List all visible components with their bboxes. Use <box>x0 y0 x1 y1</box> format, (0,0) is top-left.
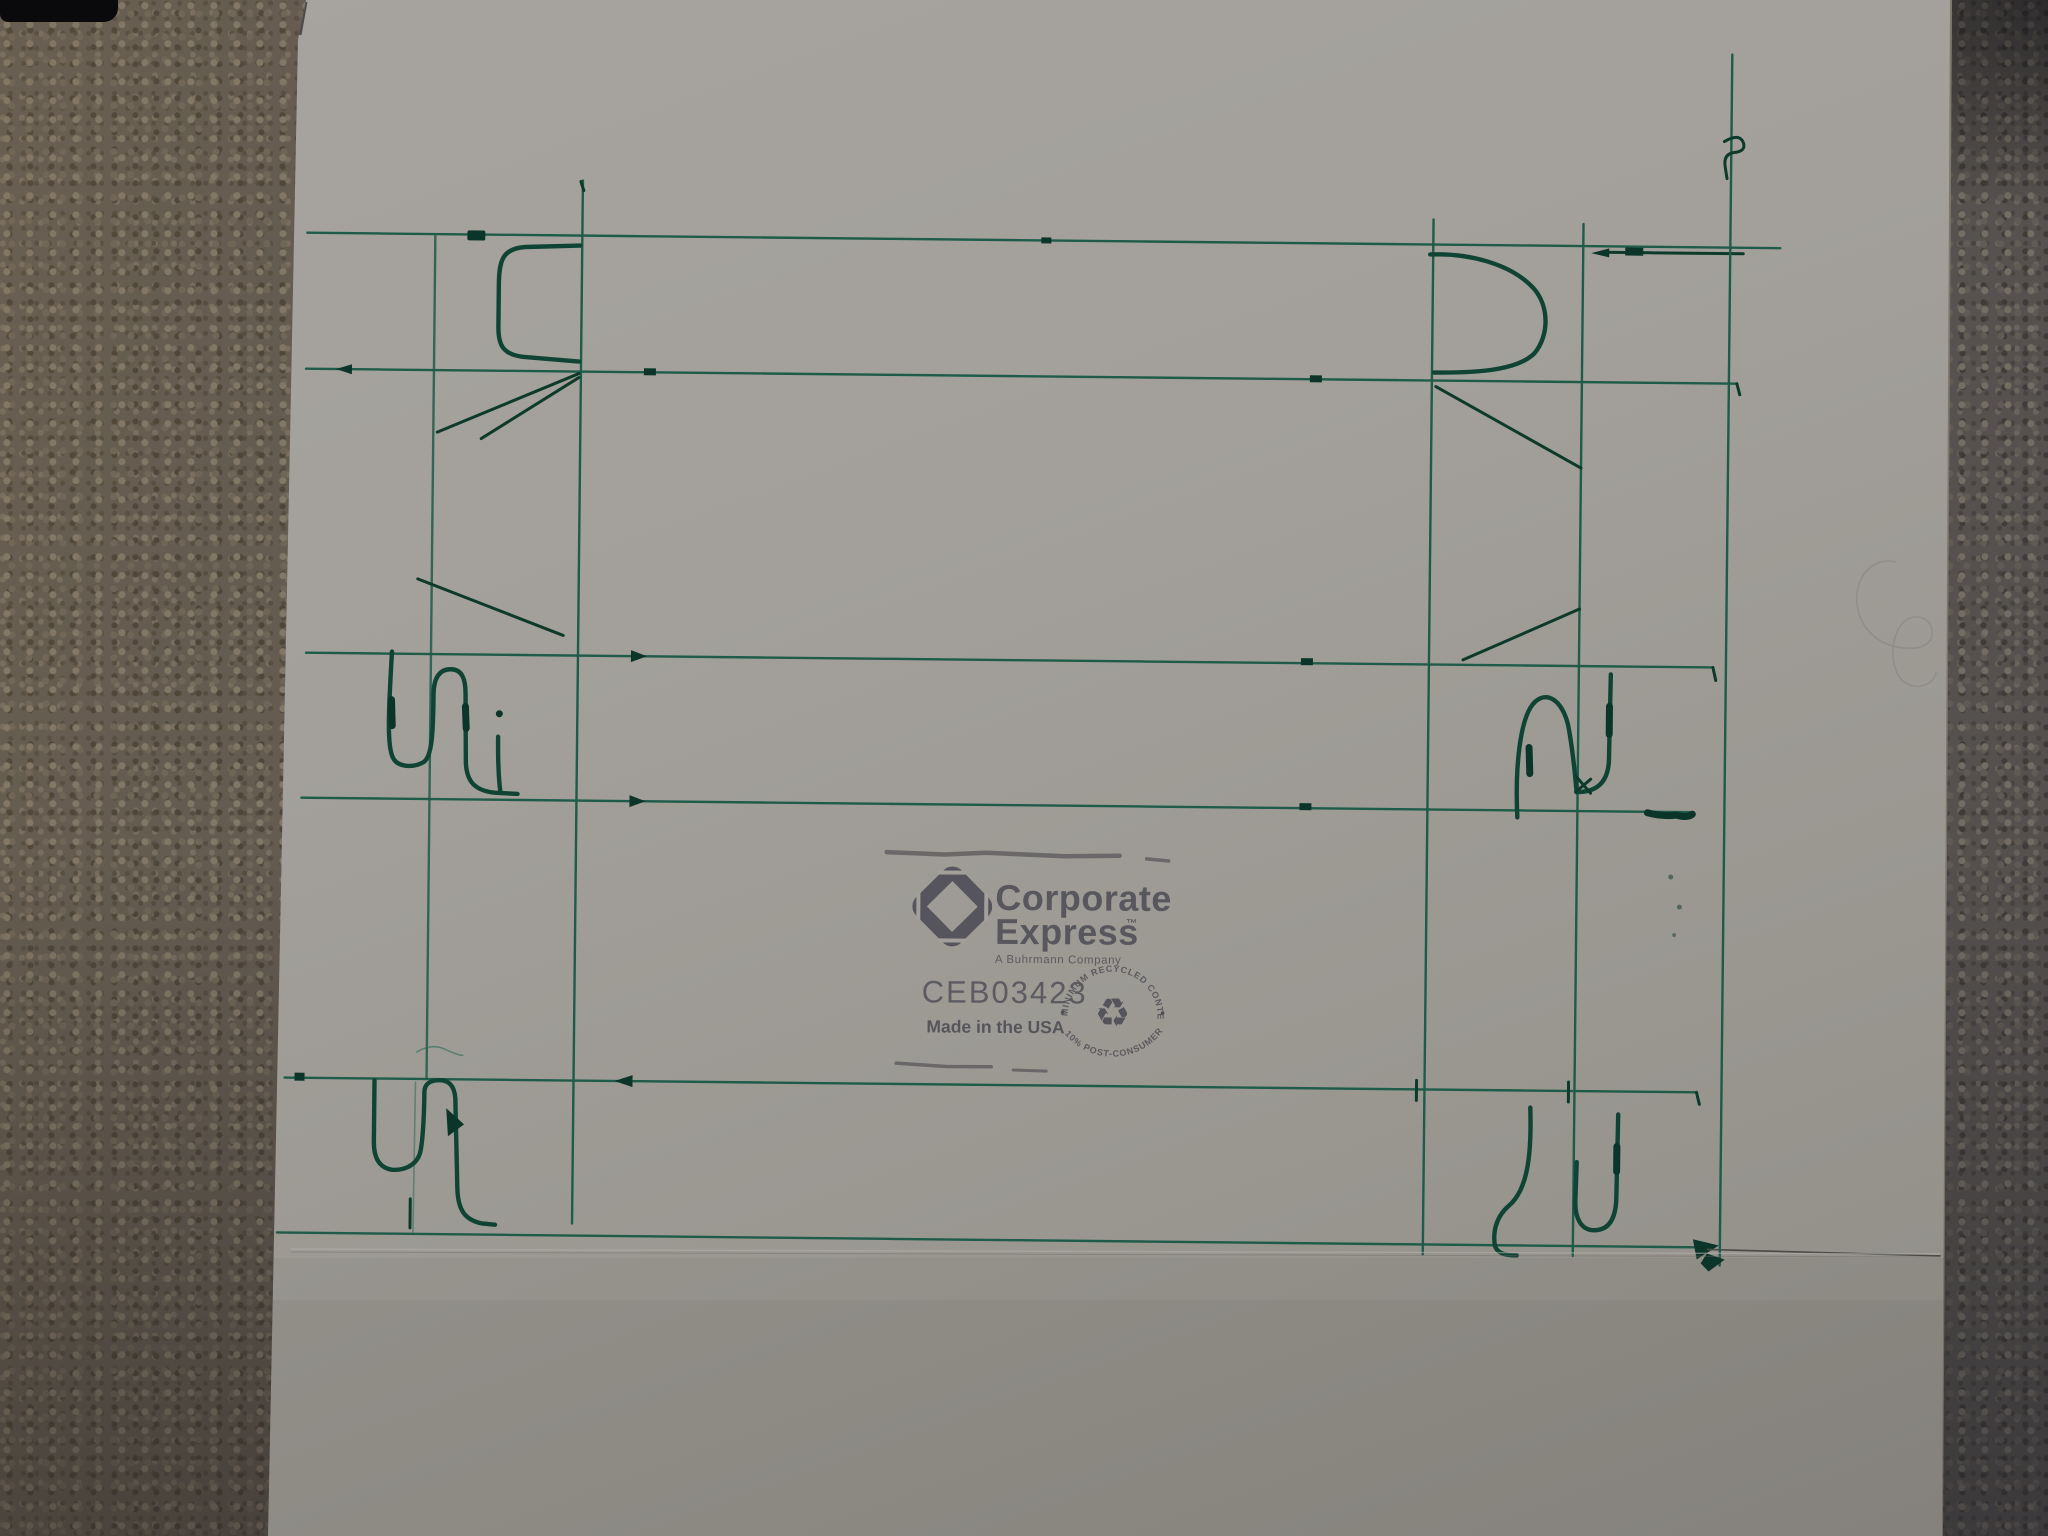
ink-speck <box>1672 933 1676 937</box>
h2-tick-right <box>1310 375 1322 382</box>
fold-line-h3 <box>306 653 1713 668</box>
h3-end-hook <box>1713 667 1716 680</box>
h1-tick-left <box>467 230 485 240</box>
ink-speck <box>1668 875 1673 880</box>
edge-line-e <box>1720 55 1733 1266</box>
h1-arrow <box>1591 248 1609 257</box>
stamp-border-bottom-smudge <box>896 1063 991 1067</box>
crease-line-a-faint <box>413 1082 416 1232</box>
stamp-origin: Made in the USA <box>926 1016 1065 1037</box>
h2-tick <box>644 368 656 375</box>
left-slot-dark1 <box>391 700 392 726</box>
h4-arrow <box>629 795 645 807</box>
crease-line-a <box>427 236 436 1079</box>
stamp-trademark: ™ <box>1126 918 1137 930</box>
folded-flap-shade2 <box>260 1300 1960 1536</box>
corporate-express-logo-icon <box>904 858 1000 954</box>
left-slot-dark2 <box>465 706 466 728</box>
box-blank-paper: Corporate Express ™ A Buhrmann Company C… <box>0 0 2048 1536</box>
fold-line-h5 <box>285 1078 1697 1093</box>
h5-tick-left <box>294 1073 304 1081</box>
left-slot-dot <box>496 710 503 717</box>
stamp-brand-line2: Express <box>995 911 1139 953</box>
bottom-right-slot-s <box>1494 1107 1531 1255</box>
diag-lower-right <box>1463 608 1580 661</box>
dark-object-top-left <box>0 0 118 22</box>
ink-speck <box>1677 905 1682 910</box>
h4-end-scribble <box>1647 813 1692 817</box>
right-slot-dark1 <box>1529 748 1530 774</box>
e-knot-squiggle <box>1724 137 1744 178</box>
recycle-symbol-icon: ♻ <box>1094 991 1130 1037</box>
h5-end-hook <box>1696 1092 1699 1104</box>
stamp-border-top-smudge2 <box>1147 859 1169 861</box>
pencil-squiggle <box>1857 561 1936 686</box>
fold-line-h1-overdraw <box>1603 252 1743 253</box>
fold-line-h4 <box>301 798 1692 813</box>
emblem-dot-left <box>1061 1010 1065 1014</box>
crease-line-d <box>1573 224 1584 1256</box>
h3-tick <box>1301 658 1313 665</box>
green-die-lines <box>277 40 1954 1274</box>
fold-line-h2 <box>306 369 1737 384</box>
h2-end-hook <box>1737 384 1740 395</box>
diag-lower-left <box>417 579 564 636</box>
crease-line-c <box>1423 220 1434 1255</box>
stamp-border-top-smudge <box>887 852 1120 857</box>
bottom-right-slot-u <box>1575 1114 1618 1230</box>
photo-scene: Corporate Express ™ A Buhrmann Company C… <box>0 0 2048 1536</box>
h1-tick-mid <box>1041 237 1051 243</box>
h1-blob <box>1625 248 1643 256</box>
diag-upper-left-1 <box>437 372 579 433</box>
right-slot-stroke <box>1577 674 1611 792</box>
stamp-border-bottom-smudge2 <box>1013 1070 1046 1071</box>
left-slot-stroke <box>498 737 502 793</box>
faint-scratch <box>417 1047 463 1056</box>
h2-arrow-left <box>336 364 352 374</box>
h6-pencil-extension <box>1707 1249 1941 1255</box>
right-tab-outline <box>1429 254 1546 373</box>
emblem-dot-right <box>1161 1011 1165 1015</box>
h4-tick <box>1299 803 1311 810</box>
crease-line-b <box>572 181 583 1224</box>
right-slot-u <box>1516 697 1577 818</box>
h5-arrow <box>614 1075 632 1087</box>
bottom-left-slot <box>373 1079 497 1224</box>
diag-upper-right <box>1435 387 1582 469</box>
left-tab-outline <box>498 245 580 362</box>
h3-arrow <box>631 650 647 662</box>
die-line-drawing: Corporate Express ™ A Buhrmann Company C… <box>0 0 2048 1536</box>
